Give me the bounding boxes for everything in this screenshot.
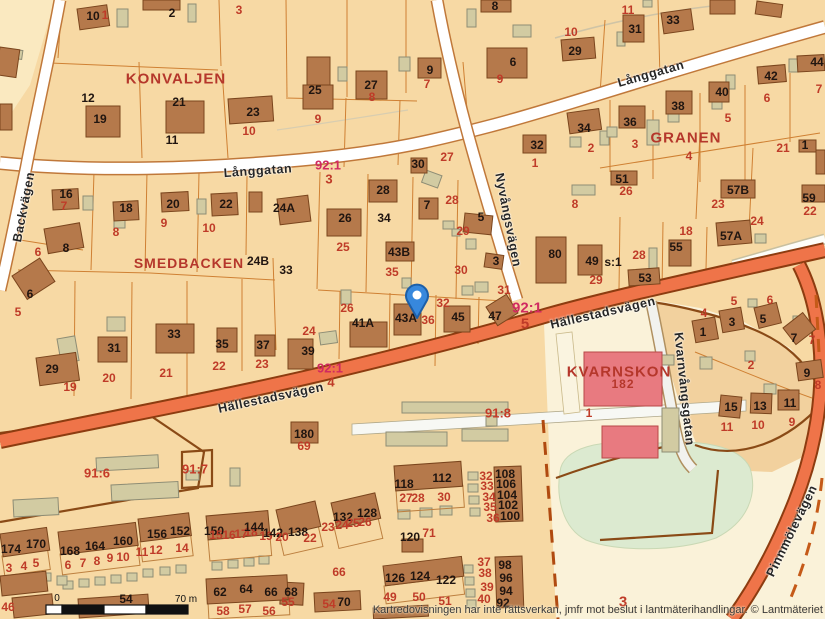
parcel-number: 19: [63, 381, 76, 393]
parcel-number: 3: [325, 173, 332, 186]
house-number: 128: [357, 507, 377, 519]
parcel-number: 6: [764, 92, 771, 104]
house-number: s:1: [604, 256, 621, 268]
parcel-number: 28: [632, 249, 645, 261]
parcel-number: 25: [336, 241, 349, 253]
parcel-number: 6: [35, 246, 42, 258]
parcel-number: 71: [422, 527, 435, 539]
house-number: 29: [45, 363, 58, 375]
area-label: KONVALJEN: [126, 72, 226, 87]
house-number: 180: [294, 428, 314, 440]
house-number: 156: [147, 528, 167, 540]
area-label: 182: [611, 378, 634, 390]
street-label: Kvarnvångsgatan: [672, 332, 696, 447]
house-number: 6: [27, 288, 34, 300]
parcel-number: 4: [701, 307, 708, 319]
area-label: SMEDBACKEN: [134, 256, 244, 270]
parcel-number: 1: [102, 9, 109, 21]
parcel-number: 49: [383, 591, 396, 603]
parcel-number: 35: [483, 501, 496, 513]
parcel-number: 33: [480, 480, 493, 492]
street-label: Långgatan: [223, 162, 292, 179]
house-number: 66: [264, 586, 277, 598]
house-number: 9: [804, 367, 811, 379]
house-number: 8: [492, 0, 499, 12]
house-number: 100: [500, 510, 520, 522]
parcel-number: 30: [454, 264, 467, 276]
parcel-number: 32: [479, 470, 492, 482]
parcel-number: 10: [116, 551, 129, 563]
house-number: 36: [623, 116, 636, 128]
street-label: Backvägen: [11, 171, 37, 243]
parcel-number: 21: [159, 367, 172, 379]
house-number: 70: [337, 596, 350, 608]
house-number: 26: [338, 212, 351, 224]
parcel-number: 20: [275, 531, 288, 543]
parcel-number: 58: [216, 605, 229, 617]
parcel-number: 7: [61, 200, 68, 212]
parcel-number: 11: [136, 546, 149, 558]
parcel-number: 4: [686, 150, 693, 162]
house-number: 39: [301, 345, 314, 357]
parcel-number: 5: [33, 557, 40, 569]
house-number: 11: [784, 397, 797, 409]
parcel-number: 5: [725, 112, 732, 124]
house-number: 41A: [352, 317, 374, 329]
parcel-number: 21: [776, 142, 789, 154]
house-number: 21: [172, 96, 185, 108]
parcel-number: 1: [586, 407, 593, 419]
parcel-number: 8: [815, 379, 822, 391]
parcel-number: 12: [149, 544, 162, 556]
parcel-number: 9: [789, 416, 796, 428]
parcel-number: 9: [161, 217, 168, 229]
parcel-number: 8: [572, 198, 579, 210]
parcel-number: 5: [731, 295, 738, 307]
house-number: 1: [700, 326, 707, 338]
house-number: 142: [263, 527, 283, 539]
parcel-number: 5: [15, 306, 22, 318]
house-number: 29: [568, 45, 581, 57]
parcel-number: 16: [222, 529, 235, 541]
property-designation: 91:7: [182, 463, 208, 476]
house-number: 57A: [720, 230, 742, 242]
scale-label: 0: [54, 594, 60, 604]
house-number: 33: [279, 264, 292, 276]
house-number: 12: [81, 92, 94, 104]
house-number: 31: [107, 342, 120, 354]
parcel-number: 29: [589, 274, 602, 286]
street-label: Långgatan: [616, 59, 685, 90]
street-label: Nyvångsvägen: [493, 172, 523, 268]
house-number: 57B: [727, 184, 749, 196]
house-number: 47: [488, 310, 501, 322]
house-number: 32: [530, 139, 543, 151]
house-number: 170: [26, 538, 46, 550]
house-number: 18: [119, 202, 132, 214]
parcel-number: 7: [424, 78, 431, 90]
house-number: 80: [548, 248, 561, 260]
parcel-number: 7: [809, 334, 816, 346]
house-number: 138: [288, 526, 308, 538]
parcel-number: 17: [234, 528, 247, 540]
house-number: 3: [493, 255, 500, 267]
house-number: 68: [284, 586, 297, 598]
house-number: 1: [802, 139, 809, 151]
parcel-number: 39: [480, 581, 493, 593]
house-number: 112: [432, 472, 451, 484]
house-number: 35: [215, 338, 228, 350]
parcel-number: 27: [440, 151, 453, 163]
house-number: 8: [63, 242, 70, 254]
house-number: 124: [410, 570, 430, 582]
house-number: 30: [411, 158, 424, 170]
parcel-number: 27: [399, 492, 412, 504]
house-number: 2: [169, 7, 176, 19]
parcel-number: 38: [478, 567, 491, 579]
parcel-number: 23: [321, 521, 334, 533]
parcel-number: 28: [411, 492, 424, 504]
house-number: 94: [499, 585, 512, 597]
house-number: 19: [93, 113, 106, 125]
house-number: 27: [364, 79, 377, 91]
house-number: 34: [577, 122, 590, 134]
house-number: 24B: [247, 255, 269, 267]
house-number: 37: [256, 339, 269, 351]
parcel-number: 9: [497, 73, 504, 85]
house-number: 31: [628, 23, 641, 35]
parcel-number: 25: [346, 517, 359, 529]
parcel-number: 6: [767, 294, 774, 306]
house-number: 53: [638, 272, 651, 284]
house-number: 62: [213, 586, 226, 598]
house-number: 104: [497, 489, 517, 501]
parcel-number: 46: [1, 601, 14, 613]
parcel-number: 26: [619, 185, 632, 197]
property-designation: 91:6: [84, 467, 110, 480]
street-label: Pinnmölevägen: [764, 483, 819, 579]
house-number: 42: [764, 70, 777, 82]
house-number: 38: [671, 100, 684, 112]
parcel-number: 10: [242, 125, 255, 137]
parcel-number: 18: [244, 526, 257, 538]
parcel-number: 22: [803, 205, 816, 217]
map-attribution: Kartredovisningen har inte rättsverkan, …: [373, 604, 823, 616]
house-number: 11: [166, 134, 179, 146]
house-number: 16: [59, 188, 72, 200]
parcel-number: 55: [281, 596, 294, 608]
parcel-number: 4: [21, 560, 28, 572]
street-label: Hällestadsvägen: [217, 381, 325, 416]
house-number: 25: [308, 84, 321, 96]
parcel-number: 37: [477, 556, 490, 568]
house-number: 102: [498, 499, 518, 511]
parcel-number: 4: [327, 376, 334, 389]
parcel-number: 30: [437, 491, 450, 503]
parcel-number: 32: [436, 297, 449, 309]
house-number: 5: [760, 313, 767, 325]
house-number: 49: [585, 255, 598, 267]
house-number: 10: [86, 10, 99, 22]
house-number: 54: [119, 593, 132, 605]
parcel-number: 10: [564, 26, 577, 38]
parcel-number: 24: [302, 325, 315, 337]
house-number: 164: [85, 540, 105, 552]
house-number: 3: [729, 316, 736, 328]
house-number: 28: [376, 184, 389, 196]
house-number: 132: [333, 511, 353, 523]
house-number: 33: [167, 328, 180, 340]
property-designation: 92:1: [317, 362, 343, 375]
parcel-number: 36: [486, 512, 499, 524]
house-number: 96: [499, 572, 512, 584]
house-number: 7: [424, 199, 431, 211]
house-number: 126: [385, 572, 405, 584]
parcel-number: 23: [711, 198, 724, 210]
parcel-number: 57: [238, 603, 251, 615]
location-pin-icon[interactable]: [402, 280, 432, 320]
street-label: Hällestadsvägen: [549, 295, 657, 331]
parcel-number: 11: [721, 421, 734, 433]
parcel-number: 3: [6, 562, 13, 574]
house-number: 15: [724, 401, 737, 413]
house-number: 7: [791, 332, 798, 344]
house-number: 6: [510, 56, 517, 68]
house-number: 168: [60, 545, 80, 557]
parcel-number: 8: [113, 226, 120, 238]
parcel-number: 24: [335, 519, 348, 531]
house-number: 122: [436, 574, 456, 586]
house-number: 144: [244, 521, 264, 533]
parcel-number: 3: [236, 4, 243, 16]
parcel-number: 2: [748, 359, 755, 371]
house-number: 152: [170, 525, 190, 537]
parcel-number: 20: [102, 372, 115, 384]
parcel-number: 8: [369, 91, 376, 103]
parcel-number: 14: [175, 542, 188, 554]
house-number: 98: [498, 559, 511, 571]
parcel-number: 3: [632, 138, 639, 150]
house-number: 64: [239, 583, 252, 595]
parcel-number: 6: [65, 559, 72, 571]
house-number: 40: [715, 86, 728, 98]
parcel-number: 10: [202, 222, 215, 234]
property-designation: 91:8: [485, 407, 511, 420]
parcel-number: 7: [80, 557, 87, 569]
house-number: 108: [495, 468, 515, 480]
house-number: 34: [377, 212, 390, 224]
parcel-number: 66: [332, 566, 345, 578]
house-number: 55: [669, 241, 682, 253]
house-number: 118: [394, 478, 413, 490]
house-number: 24A: [273, 202, 295, 214]
house-number: 23: [246, 106, 259, 118]
scale-label: 70 m: [175, 595, 197, 605]
house-number: 106: [496, 478, 516, 490]
parcel-number: 9: [107, 552, 114, 564]
parcel-number: 34: [482, 491, 495, 503]
parcel-number: 8: [94, 555, 101, 567]
house-number: 44: [810, 56, 823, 68]
house-number: 174: [1, 543, 21, 555]
house-number: 160: [113, 535, 133, 547]
parcel-number: 29: [456, 225, 469, 237]
property-designation: 92:1: [512, 301, 542, 316]
house-number: 59: [802, 192, 815, 204]
map-canvas[interactable]: 10123KONVALJEN12192111231082592789769113…: [0, 0, 825, 619]
parcel-number: 2: [588, 142, 595, 154]
area-label: GRANEN: [650, 131, 721, 146]
parcel-number: 26: [340, 302, 353, 314]
parcel-number: 23: [255, 358, 268, 370]
house-number: 9: [427, 64, 434, 76]
house-number: 13: [753, 400, 766, 412]
parcel-number: 10: [751, 419, 764, 431]
house-number: 120: [400, 531, 420, 543]
parcel-number: 9: [315, 113, 322, 125]
house-number: 5: [478, 211, 485, 223]
house-number: 22: [219, 198, 232, 210]
parcel-number: 26: [358, 516, 371, 528]
parcel-number: 1: [532, 157, 539, 169]
area-label: KVARNSKON: [567, 365, 672, 380]
parcel-number: 5: [521, 317, 529, 332]
parcel-number: 35: [385, 266, 398, 278]
house-number: 33: [666, 14, 679, 26]
parcel-number: 50: [412, 591, 425, 603]
house-number: 51: [615, 173, 628, 185]
parcel-number: 54: [322, 598, 335, 610]
property-designation: 92:1: [315, 159, 341, 172]
parcel-number: 15: [209, 529, 222, 541]
parcel-number: 24: [750, 215, 763, 227]
house-number: 20: [166, 198, 179, 210]
parcel-number: 19: [259, 530, 272, 542]
house-number: 150: [204, 525, 224, 537]
parcel-number: 22: [303, 532, 316, 544]
parcel-number: 31: [497, 284, 510, 296]
parcel-number: 69: [297, 440, 310, 452]
parcel-number: 11: [622, 4, 635, 16]
parcel-number: 28: [445, 194, 458, 206]
parcel-number: 22: [212, 360, 225, 372]
house-number: 43B: [388, 246, 410, 258]
parcel-number: 56: [262, 605, 275, 617]
parcel-number: 18: [679, 225, 692, 237]
parcel-number: 7: [816, 83, 823, 95]
house-number: 45: [451, 311, 464, 323]
